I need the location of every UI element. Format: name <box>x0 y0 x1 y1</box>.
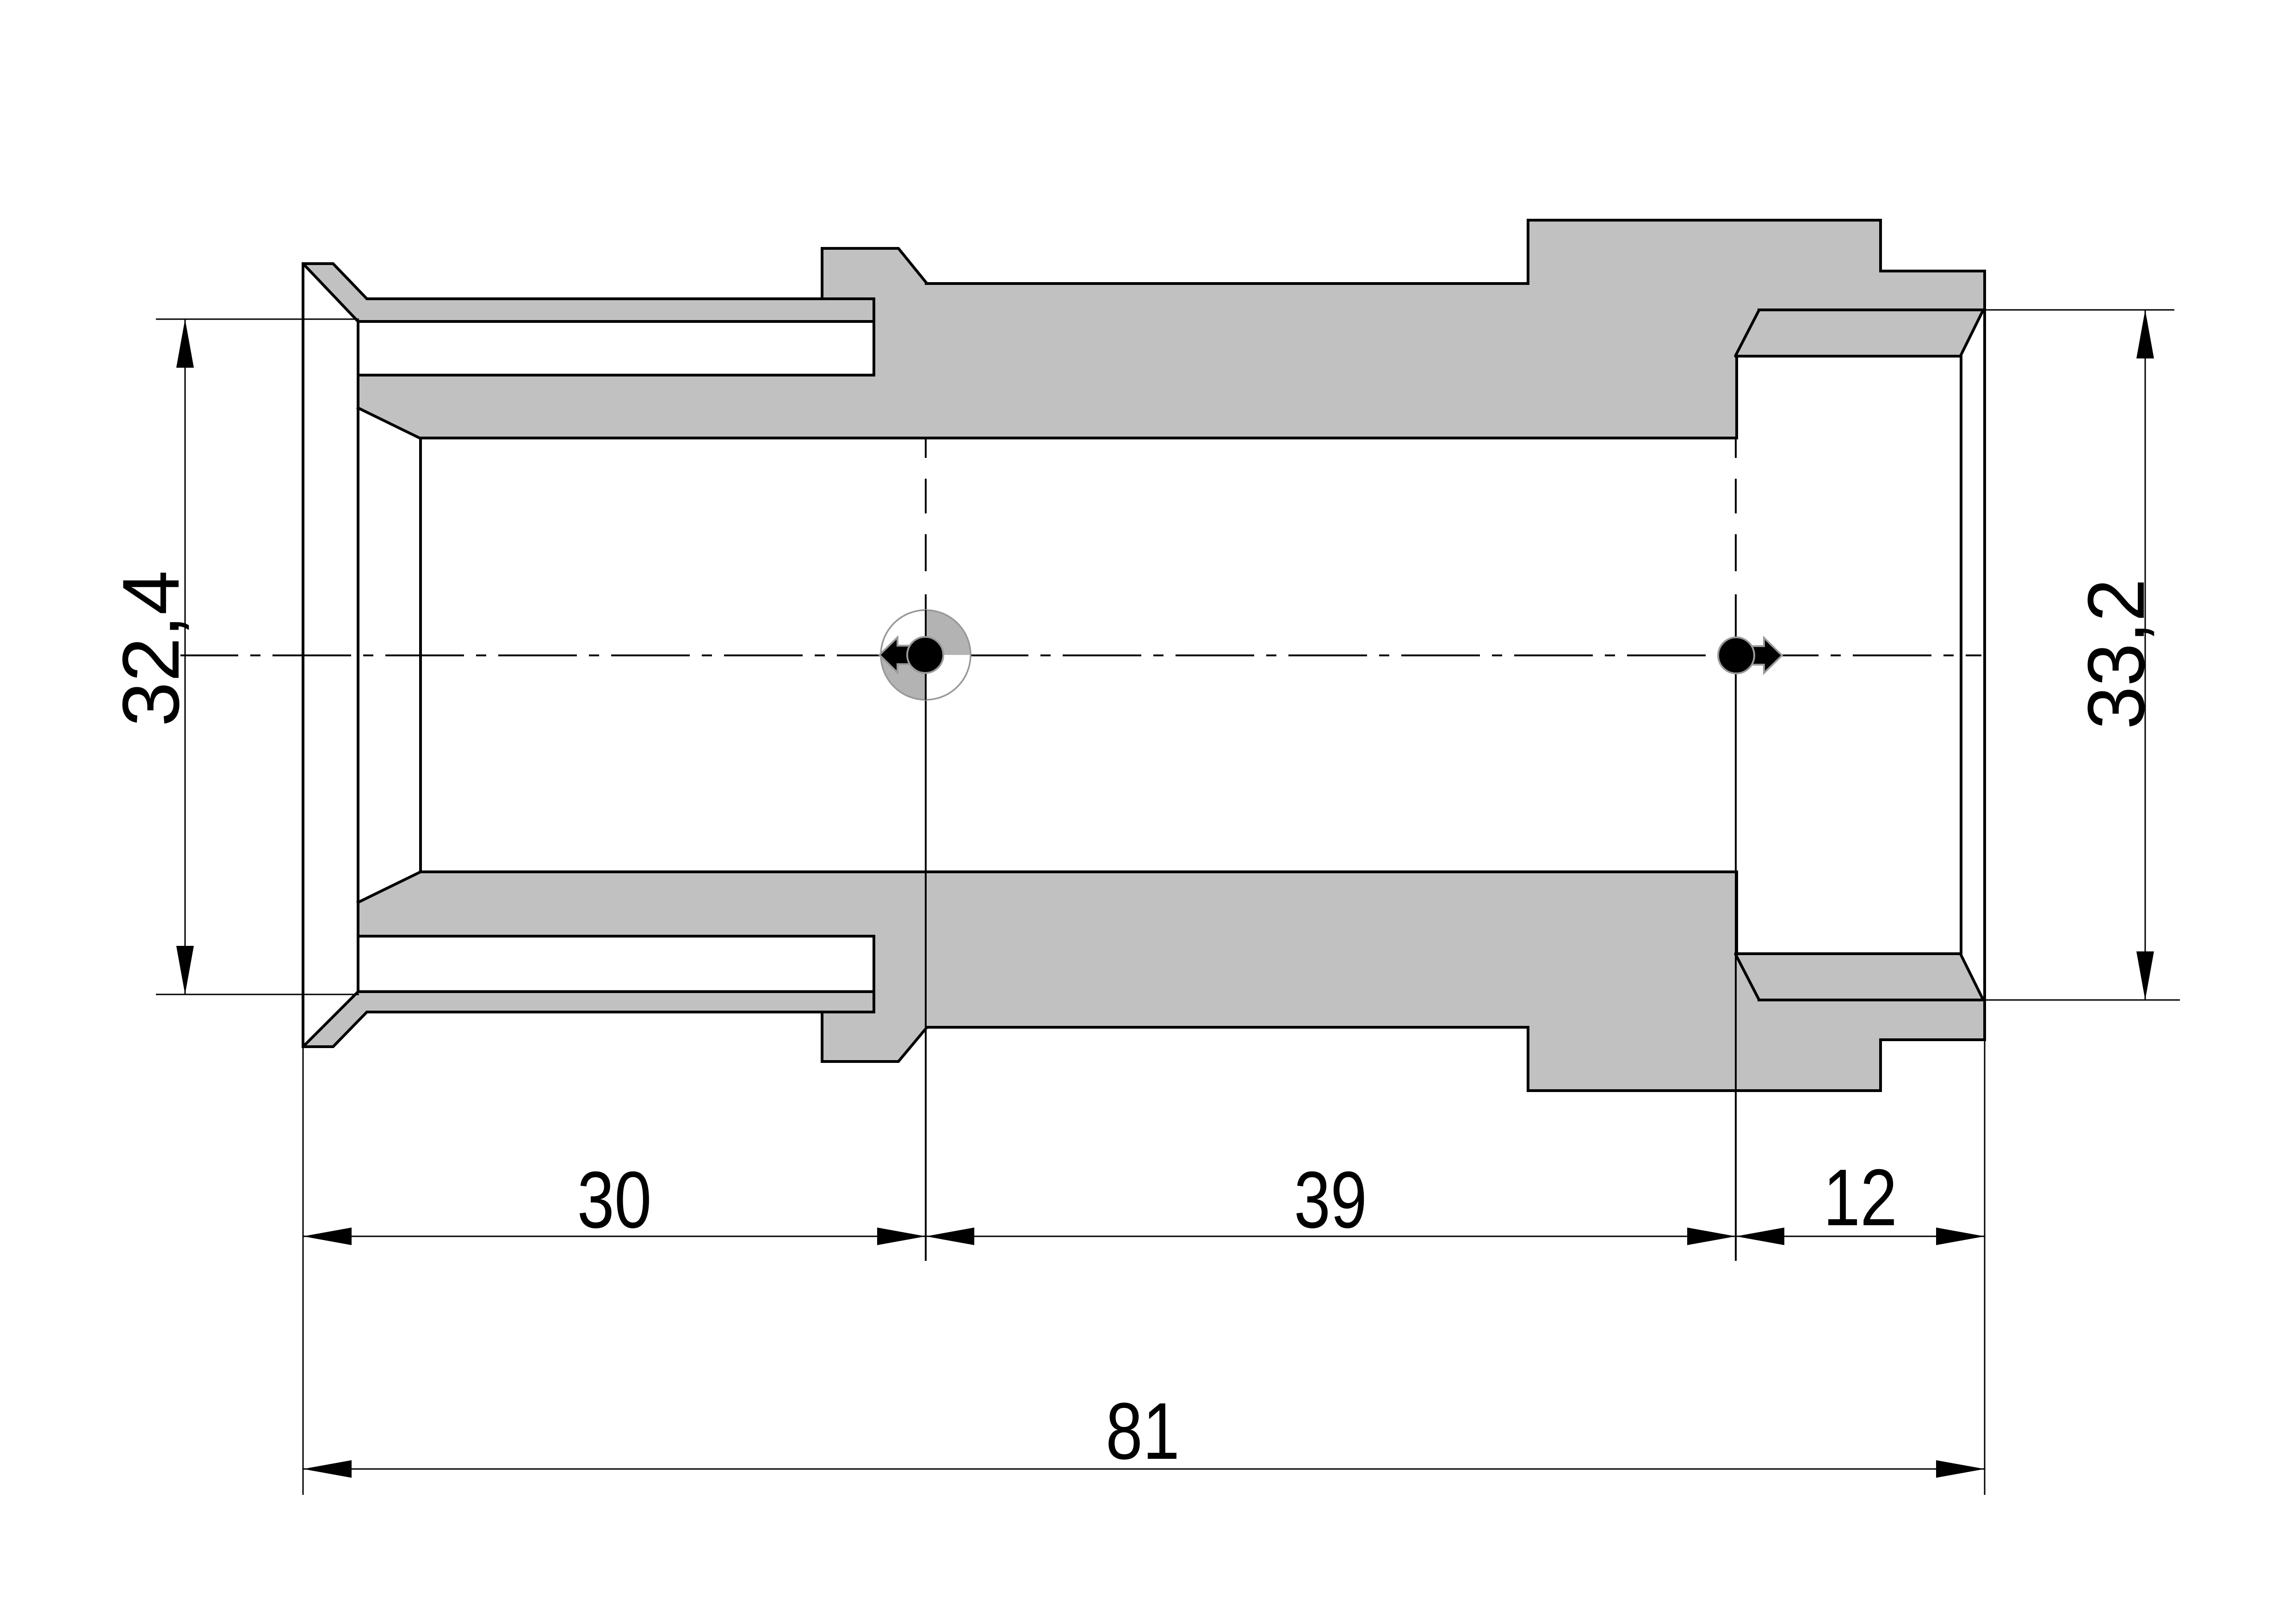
svg-text:33,2: 33,2 <box>2071 579 2161 729</box>
svg-text:30: 30 <box>577 1154 652 1245</box>
svg-text:81: 81 <box>1106 1386 1180 1476</box>
svg-text:39: 39 <box>1294 1154 1367 1245</box>
svg-text:32,4: 32,4 <box>105 570 196 727</box>
svg-text:12: 12 <box>1823 1152 1897 1242</box>
